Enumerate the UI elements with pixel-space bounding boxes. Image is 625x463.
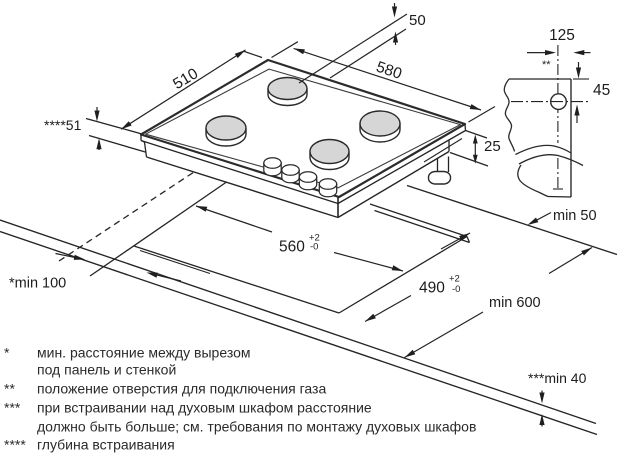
svg-text:125: 125: [549, 27, 575, 44]
svg-text:50: 50: [409, 12, 426, 29]
svg-text:min 600: min 600: [489, 295, 541, 311]
svg-text:45: 45: [593, 82, 610, 99]
svg-text:мин. расстояние между вырезом: мин. расстояние между вырезом: [37, 345, 251, 361]
svg-text:580: 580: [374, 59, 404, 83]
svg-text:при встраивании над духовым шк: при встраивании над духовым шкафом расст…: [37, 400, 372, 416]
svg-text:положение отверстия для подклю: положение отверстия для подключения газа: [37, 381, 326, 397]
svg-text:min 50: min 50: [553, 208, 597, 224]
svg-text:глубина встраивания: глубина встраивания: [37, 437, 175, 453]
svg-text:*min 100: *min 100: [9, 276, 66, 292]
svg-text:*: *: [4, 345, 10, 361]
svg-text:510: 510: [170, 65, 201, 93]
svg-text:***: ***: [4, 400, 21, 416]
svg-text:**: **: [542, 59, 551, 71]
svg-text:-0: -0: [452, 284, 460, 295]
svg-text:+2: +2: [449, 274, 460, 285]
svg-text:560: 560: [279, 239, 305, 256]
svg-text:****: ****: [4, 437, 26, 453]
svg-text:должно быть больше; см. требов: должно быть больше; см. требования по мо…: [37, 419, 476, 435]
svg-text:под панель и стенкой: под панель и стенкой: [37, 362, 176, 378]
svg-text:490: 490: [419, 280, 445, 297]
svg-text:25: 25: [484, 138, 501, 155]
svg-text:***min 40: ***min 40: [528, 370, 587, 386]
svg-text:****51: ****51: [44, 117, 82, 133]
svg-text:**: **: [4, 381, 15, 397]
svg-text:-0: -0: [310, 242, 318, 253]
